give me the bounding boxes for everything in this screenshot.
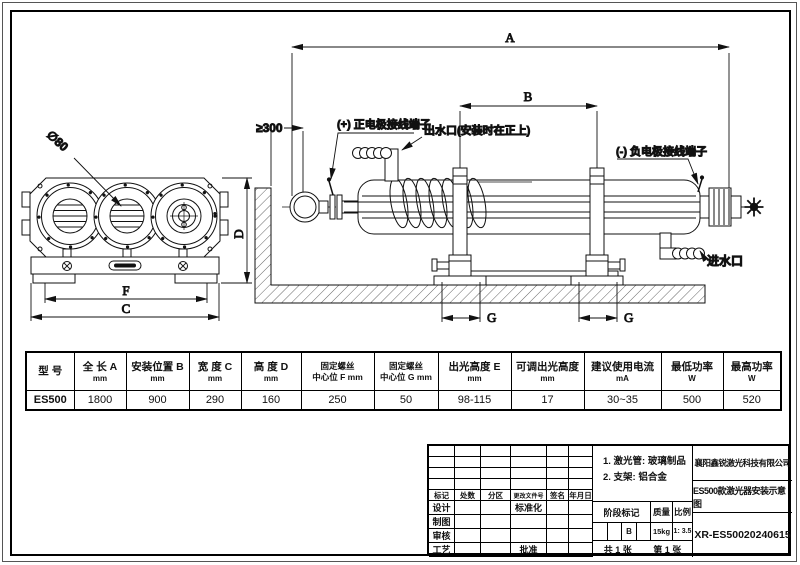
water-outlet-pipe — [353, 148, 399, 182]
dim-C-label: C — [122, 301, 131, 316]
col-width: 宽 度 Cmm — [189, 352, 241, 391]
revision-header-mark: 标记 — [429, 490, 455, 501]
role-cell — [511, 529, 547, 543]
cell-max-power: 520 — [723, 391, 781, 411]
sheet-total: 共 1 张 — [604, 543, 632, 556]
front-left-tab — [22, 220, 30, 235]
revision-cell — [569, 468, 592, 479]
revision-cell — [429, 468, 455, 479]
note-line-1: 1. 激光管: 玻璃制品 — [603, 454, 692, 470]
dim-A-label: A — [505, 30, 515, 45]
water-outlet-label: 出水口(安装时在正上) — [424, 123, 531, 137]
stage-mark-cell — [636, 522, 650, 540]
company-name: 襄阳鑫锐激光科技有限公司 — [692, 446, 792, 480]
material-notes: 1. 激光管: 玻璃制品 2. 支架: 铝合金 — [592, 446, 692, 501]
col-unit: mm — [242, 374, 301, 383]
title-block: 标记 处数 分区 更改文件号 签名 年月日 设计 标准化 制图 审核 工艺 批准… — [427, 444, 790, 555]
laser-beam-symbol — [745, 198, 764, 217]
col-max-power: 最高功率W — [723, 352, 781, 391]
cell-width: 290 — [189, 391, 241, 411]
dim-D: D — [221, 178, 252, 283]
col-install-position: 安装位置 Bmm — [126, 352, 189, 391]
col-label: 型 号 — [27, 365, 74, 378]
front-foot-right — [175, 274, 217, 283]
stage-mark-cell — [607, 522, 621, 540]
cell-total-length: 1800 — [74, 391, 126, 411]
diameter-label: ∅80 — [44, 128, 71, 154]
role-cell — [547, 543, 569, 557]
dim-F: F — [45, 283, 207, 303]
role-cell — [455, 501, 481, 515]
stage-mark-header: 阶段标记 — [592, 501, 650, 522]
dim-B-label: B — [524, 89, 533, 104]
tube-port-3 — [151, 183, 217, 249]
role-cell — [481, 543, 511, 557]
drawing-views: ∅80 D F C — [0, 0, 800, 350]
cell-model: ES500 — [26, 391, 74, 411]
col-unit: W — [662, 374, 723, 383]
col-label: 固定螺丝 — [375, 361, 438, 372]
revision-cell — [547, 479, 569, 490]
col-unit: 中心位 F mm — [302, 372, 374, 383]
revision-cell — [455, 457, 481, 468]
front-right-tab — [220, 220, 228, 235]
revision-cell — [511, 446, 547, 457]
col-beam-height: 出光高度 Emm — [438, 352, 511, 391]
dim-D-label: D — [231, 229, 246, 238]
revision-grid: 标记 处数 分区 更改文件号 签名 年月日 — [429, 446, 592, 501]
revision-cell — [569, 479, 592, 490]
dim-G-right-label: G — [624, 310, 633, 325]
glass-jacket — [358, 180, 700, 234]
col-unit: mm — [75, 374, 126, 383]
col-min-power: 最低功率W — [661, 352, 723, 391]
role-cell — [569, 501, 592, 515]
revision-cell — [511, 468, 547, 479]
role-cell — [569, 529, 592, 543]
revision-header-count: 处数 — [455, 490, 481, 501]
cell-install-position: 900 — [126, 391, 189, 411]
col-unit: W — [724, 374, 781, 383]
dim-A: A — [292, 30, 729, 196]
dim-wall-clearance: ≥300 — [256, 121, 303, 192]
role-standardize: 标准化 — [511, 501, 547, 515]
sheet-index: 第 1 张 — [653, 543, 681, 556]
col-label: 宽 度 C — [190, 361, 241, 374]
col-unit: mm — [512, 374, 584, 383]
col-unit: mm — [439, 374, 511, 383]
water-inlet-label: 进水口 — [707, 253, 743, 268]
role-cell — [511, 515, 547, 529]
role-grid: 设计 标准化 制图 审核 工艺 批准 — [429, 501, 592, 553]
revision-cell — [569, 457, 592, 468]
revision-cell — [429, 479, 455, 490]
front-right-tab — [220, 192, 228, 207]
stage-mark-cell — [592, 522, 607, 540]
role-cell — [481, 529, 511, 543]
engineering-drawing-sheet: { "drawing": { "dim_labels": { "A": "A",… — [0, 0, 800, 565]
col-recommended-current: 建议使用电流mA — [584, 352, 661, 391]
spec-data-row: ES500 1800 900 290 160 250 50 98-115 17 … — [26, 391, 781, 411]
role-design: 设计 — [429, 501, 455, 515]
col-screw-center-f: 固定螺丝中心位 F mm — [301, 352, 374, 391]
negative-terminal-label: (-) 负电极接线端子 — [616, 144, 707, 158]
revision-cell — [429, 446, 455, 457]
drawing-number: XR-ES50020240615 — [692, 512, 792, 557]
revision-cell — [481, 457, 511, 468]
col-unit: 中心位 G mm — [375, 372, 438, 383]
col-label: 固定螺丝 — [302, 361, 374, 372]
stage-mark-value: B — [621, 522, 636, 540]
cell-adjustable-beam-height: 17 — [511, 391, 584, 411]
revision-cell — [455, 446, 481, 457]
revision-header-signature: 签名 — [547, 490, 569, 501]
role-cell — [547, 515, 569, 529]
role-cell — [569, 515, 592, 529]
positive-terminal-label: (+) 正电极接线端子 — [337, 117, 431, 131]
role-cell — [455, 543, 481, 557]
col-label: 出光高度 E — [439, 361, 511, 374]
revision-cell — [481, 479, 511, 490]
col-label: 最高功率 — [724, 361, 781, 374]
dim-F-label: F — [122, 283, 129, 298]
revision-header-zone: 分区 — [481, 490, 511, 501]
role-cell — [569, 543, 592, 557]
col-total-length: 全 长 Amm — [74, 352, 126, 391]
cell-screw-center-g: 50 — [374, 391, 438, 411]
scale-value: 1: 3.5 — [672, 522, 692, 540]
role-check: 审核 — [429, 529, 455, 543]
output-coupler — [700, 188, 747, 226]
cell-screw-center-f: 250 — [301, 391, 374, 411]
dim-G-left-label: G — [487, 310, 496, 325]
col-label: 建议使用电流 — [585, 361, 661, 374]
role-cell — [455, 515, 481, 529]
role-draft: 制图 — [429, 515, 455, 529]
drawing-title: ES500款激光器安装示意图 — [692, 480, 792, 512]
laser-tube — [290, 148, 764, 260]
col-label: 安装位置 B — [127, 361, 189, 374]
front-view: ∅80 D F C — [22, 128, 252, 321]
cell-recommended-current: 30~35 — [584, 391, 661, 411]
revision-cell — [455, 468, 481, 479]
col-label: 高 度 D — [242, 361, 301, 374]
revision-cell — [511, 457, 547, 468]
role-cell — [455, 529, 481, 543]
revision-cell — [481, 446, 511, 457]
revision-header-docno: 更改文件号 — [511, 490, 547, 501]
wall-clearance-label: ≥300 — [256, 121, 283, 135]
col-unit: mA — [585, 374, 661, 383]
note-line-2: 2. 支架: 铝合金 — [603, 470, 692, 486]
cell-height: 160 — [241, 391, 301, 411]
col-unit: mm — [127, 374, 189, 383]
col-label: 可调出光高度 — [512, 361, 584, 374]
spec-header-row: 型 号 全 长 Amm 安装位置 Bmm 宽 度 Cmm 高 度 Dmm 固定螺… — [26, 352, 781, 391]
revision-cell — [569, 446, 592, 457]
revision-cell — [511, 479, 547, 490]
revision-header-date: 年月日 — [569, 490, 592, 501]
weight-value: 15kg — [650, 522, 672, 540]
front-foot-left — [33, 274, 75, 283]
water-inlet-pipe — [660, 233, 705, 259]
role-cell — [547, 501, 569, 515]
revision-cell — [547, 457, 569, 468]
revision-cell — [481, 468, 511, 479]
role-cell — [547, 529, 569, 543]
role-approve: 批准 — [511, 543, 547, 557]
front-left-tab — [22, 192, 30, 207]
role-process: 工艺 — [429, 543, 455, 557]
col-model: 型 号 — [26, 352, 74, 391]
col-label: 全 长 A — [75, 361, 126, 374]
col-screw-center-g: 固定螺丝中心位 G mm — [374, 352, 438, 391]
spec-table: 型 号 全 长 Amm 安装位置 Bmm 宽 度 Cmm 高 度 Dmm 固定螺… — [25, 351, 782, 411]
role-cell — [481, 501, 511, 515]
col-label: 最低功率 — [662, 361, 723, 374]
col-unit: mm — [190, 374, 241, 383]
side-view: ≥300 A B — [255, 30, 764, 325]
revision-cell — [547, 446, 569, 457]
revision-cell — [547, 468, 569, 479]
cell-beam-height: 98-115 — [438, 391, 511, 411]
col-height: 高 度 Dmm — [241, 352, 301, 391]
cell-min-power: 500 — [661, 391, 723, 411]
tube-port-2 — [94, 183, 160, 249]
revision-cell — [429, 457, 455, 468]
sheet-count-row: 共 1 张 第 1 张 — [592, 540, 692, 557]
weight-header: 质量 — [650, 501, 672, 522]
role-cell — [481, 515, 511, 529]
revision-cell — [455, 479, 481, 490]
col-adjustable-beam-height: 可调出光高度mm — [511, 352, 584, 391]
scale-header: 比例 — [672, 501, 692, 522]
